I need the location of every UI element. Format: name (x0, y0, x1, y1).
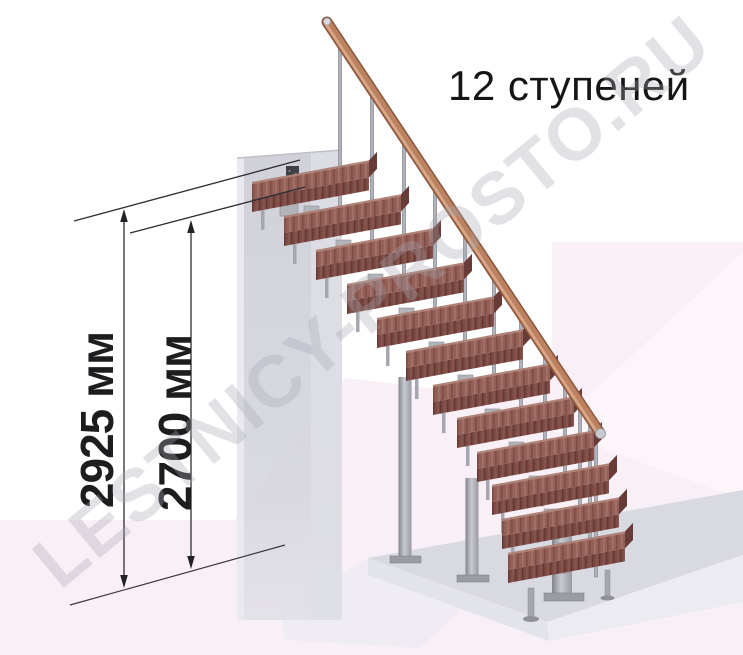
dimension-label-2700: 2700 мм (150, 313, 200, 533)
wall-left-edge (237, 157, 244, 620)
support-column (399, 377, 412, 561)
column-base-plate (457, 575, 489, 582)
support-column (466, 478, 479, 580)
tread-leg (293, 244, 297, 264)
column-base-plate (390, 556, 421, 563)
dimension-label-2925: 2925 мм (72, 310, 122, 530)
step-count-title: 12 ступеней (448, 62, 688, 110)
bottom-leg-foot (601, 596, 615, 601)
bracket-hole (289, 170, 291, 172)
arrow-up (120, 209, 128, 222)
tread-leg (261, 210, 265, 230)
handrail-end-cap (596, 429, 606, 439)
tread-leg (415, 379, 419, 399)
staircase-diagram: 12 ступеней 2925 мм 2700 мм LESTNICY-PRO… (0, 0, 743, 655)
bottom-leg-foot (523, 616, 539, 622)
handrail-top-cap (324, 18, 331, 25)
tread-leg (325, 278, 329, 298)
tread-leg (386, 346, 390, 366)
tread-leg (442, 413, 446, 433)
tread-leg (466, 446, 470, 466)
bottom-leg (528, 588, 534, 618)
tread-leg (486, 480, 490, 500)
column-base-plate (544, 593, 584, 601)
tread-leg (356, 312, 360, 332)
bottom-leg (605, 570, 610, 597)
arrow-up (187, 220, 195, 233)
